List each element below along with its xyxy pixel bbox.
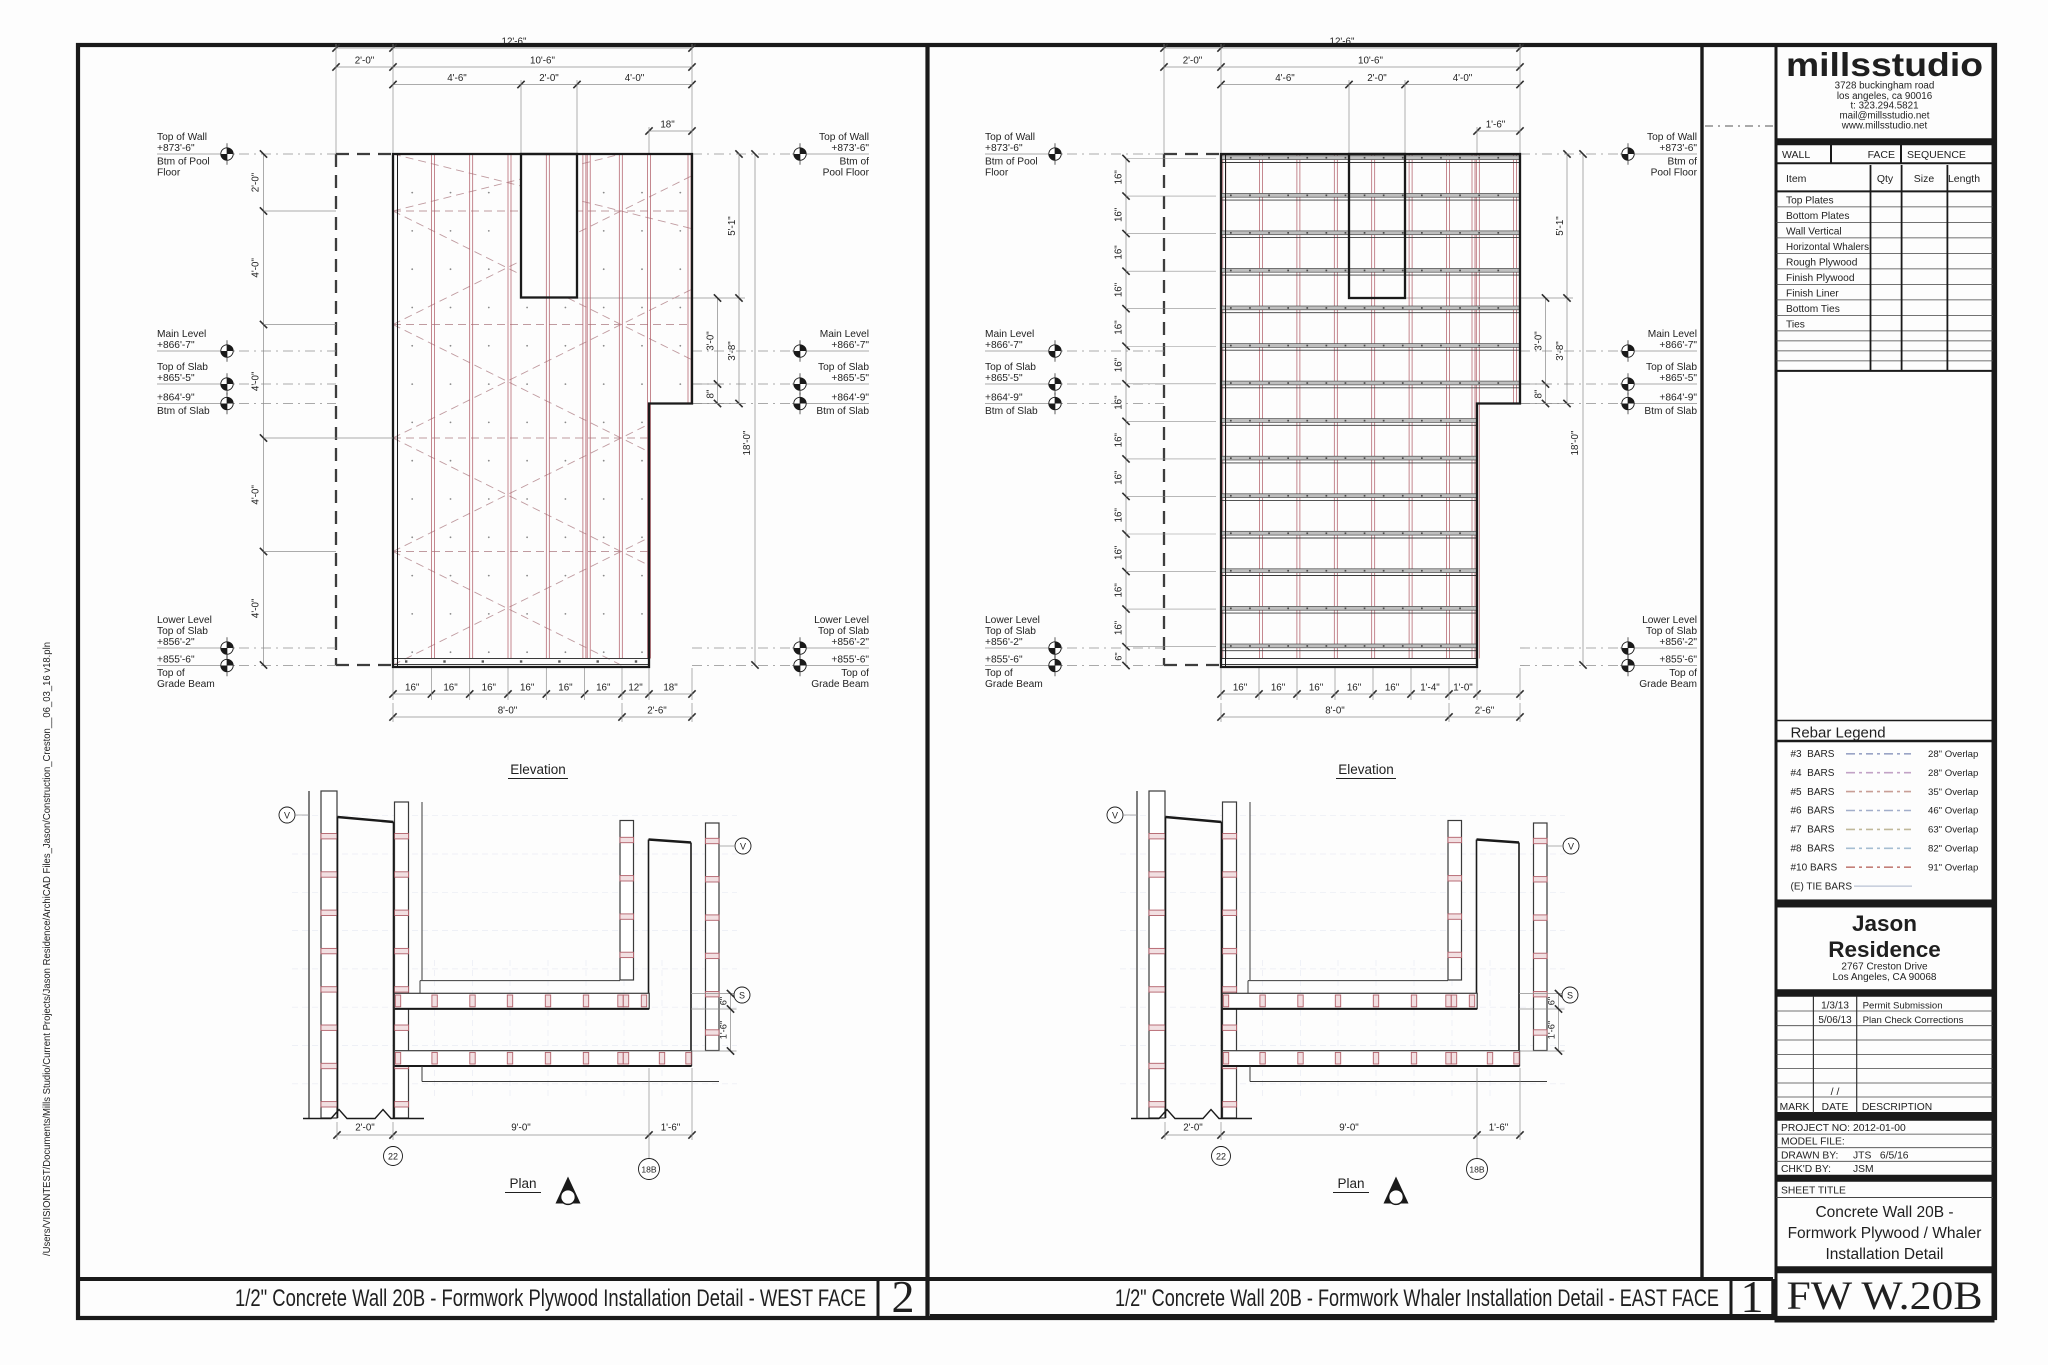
svg-text:16": 16" [1309, 683, 1324, 694]
svg-text:Lower Level: Lower Level [1642, 615, 1697, 626]
svg-text:Floor: Floor [985, 168, 1009, 179]
svg-text:Permit Submission: Permit Submission [1863, 1000, 1943, 1011]
svg-text:Top of Slab: Top of Slab [818, 362, 869, 373]
svg-text:#4 BARS: #4 BARS [1791, 768, 1835, 779]
svg-text:Plan: Plan [1337, 1176, 1364, 1191]
svg-text:10'-6": 10'-6" [530, 56, 555, 67]
svg-text:Item: Item [1786, 173, 1807, 185]
svg-text:Lower Level: Lower Level [985, 615, 1040, 626]
svg-text:Ties: Ties [1786, 320, 1805, 331]
svg-text:63" Overlap: 63" Overlap [1928, 825, 1978, 836]
svg-text:/ /: / / [1831, 1086, 1840, 1098]
svg-text:+855'-6": +855'-6" [985, 655, 1023, 666]
svg-text:+865'-5": +865'-5" [157, 373, 195, 384]
svg-text:16": 16" [1114, 620, 1125, 635]
svg-text:Btm of Slab: Btm of Slab [985, 406, 1038, 417]
svg-text:+855'-6": +855'-6" [831, 655, 869, 666]
svg-text:16": 16" [1114, 207, 1125, 222]
svg-text:JTS 6/5/16: JTS 6/5/16 [1853, 1150, 1909, 1161]
svg-text:18B: 18B [641, 1165, 657, 1175]
svg-text:4'-0": 4'-0" [251, 598, 262, 618]
svg-text:Floor: Floor [157, 168, 181, 179]
svg-text:Lower Level: Lower Level [814, 615, 869, 626]
svg-text:16": 16" [405, 683, 420, 694]
svg-text:Finish Liner: Finish Liner [1786, 289, 1839, 300]
svg-text:18B: 18B [1469, 1165, 1485, 1175]
svg-text:18'-0": 18'-0" [742, 430, 753, 455]
svg-text:+864'-9": +864'-9" [985, 393, 1023, 404]
svg-text:2'-0": 2'-0" [355, 56, 375, 67]
svg-text:+855'-6": +855'-6" [157, 655, 195, 666]
svg-text:FW W.20B: FW W.20B [1787, 1273, 1983, 1318]
svg-text:Size: Size [1914, 173, 1935, 185]
svg-text:4'-6": 4'-6" [1275, 73, 1295, 84]
svg-text:Top of Wall: Top of Wall [985, 132, 1035, 143]
svg-text:22: 22 [388, 1152, 398, 1162]
svg-text:1'-4": 1'-4" [1420, 683, 1440, 694]
svg-text:+866'-7": +866'-7" [1659, 340, 1697, 351]
svg-text:Btm of: Btm of [840, 157, 870, 168]
svg-text:Wall Vertical: Wall Vertical [1786, 227, 1842, 238]
svg-text:Los Angeles, CA 90068: Los Angeles, CA 90068 [1833, 972, 1937, 983]
svg-text:4'-6": 4'-6" [447, 73, 467, 84]
svg-text:Finish Plywood: Finish Plywood [1786, 273, 1855, 284]
svg-text:16": 16" [1233, 683, 1248, 694]
svg-text:9'-0": 9'-0" [511, 1123, 531, 1134]
svg-text:Grade Beam: Grade Beam [985, 679, 1043, 690]
svg-text:16": 16" [482, 683, 497, 694]
svg-text:+865'-5": +865'-5" [831, 373, 869, 384]
svg-text:Top of Slab: Top of Slab [157, 626, 208, 637]
svg-text:16": 16" [1347, 683, 1362, 694]
svg-text:1'-6": 1'-6" [1486, 120, 1506, 131]
svg-text:Btm of: Btm of [1668, 157, 1698, 168]
svg-text:8'-0": 8'-0" [498, 706, 518, 717]
svg-text:Btm of Slab: Btm of Slab [1644, 406, 1697, 417]
svg-text:82" Overlap: 82" Overlap [1928, 844, 1978, 855]
svg-text:16": 16" [1271, 683, 1286, 694]
svg-text:28" Overlap: 28" Overlap [1928, 749, 1978, 760]
svg-text:Main Level: Main Level [157, 329, 206, 340]
svg-text:+856'-2": +856'-2" [157, 637, 195, 648]
svg-text:Btm of Pool: Btm of Pool [985, 157, 1038, 168]
svg-text:16": 16" [1114, 395, 1125, 410]
svg-text:V: V [740, 842, 746, 852]
svg-text:16": 16" [1114, 170, 1125, 185]
svg-text:+864'-9": +864'-9" [157, 393, 195, 404]
svg-text:Length: Length [1948, 173, 1980, 185]
svg-text:16": 16" [1114, 545, 1125, 560]
svg-text:2'-0": 2'-0" [355, 1123, 375, 1134]
svg-text:6": 6" [719, 997, 729, 1005]
svg-text:2'-0": 2'-0" [251, 172, 262, 192]
svg-text:1'-6": 1'-6" [1547, 1021, 1557, 1040]
svg-text:1/2" Concrete Wall 20B - Formw: 1/2" Concrete Wall 20B - Formwork Whaler… [1115, 1285, 1719, 1312]
svg-text:Grade Beam: Grade Beam [157, 679, 215, 690]
svg-text:8": 8" [1534, 389, 1545, 398]
svg-text:16": 16" [1114, 432, 1125, 447]
svg-text:3'-0": 3'-0" [706, 331, 717, 351]
svg-text:Top of: Top of [1669, 668, 1697, 679]
svg-text:+865'-5": +865'-5" [985, 373, 1023, 384]
svg-text:Main Level: Main Level [1648, 329, 1697, 340]
svg-text:Formwork Plywood / Whaler: Formwork Plywood / Whaler [1788, 1225, 1982, 1242]
svg-text:2'-6": 2'-6" [647, 706, 667, 717]
svg-text:+856'-2": +856'-2" [831, 637, 869, 648]
svg-text:FACE: FACE [1868, 149, 1895, 161]
svg-text:Pool Floor: Pool Floor [823, 168, 870, 179]
svg-text:18": 18" [663, 683, 678, 694]
svg-text:Grade Beam: Grade Beam [1639, 679, 1697, 690]
svg-text:+866'-7": +866'-7" [831, 340, 869, 351]
svg-text:Top of Slab: Top of Slab [157, 362, 208, 373]
svg-text:Qty: Qty [1877, 173, 1894, 185]
svg-text:V: V [1112, 811, 1118, 821]
svg-text:+873'-6": +873'-6" [1659, 143, 1697, 154]
svg-text:1: 1 [1741, 1271, 1764, 1322]
svg-text:Rebar Legend: Rebar Legend [1791, 725, 1886, 742]
svg-text:Top of Slab: Top of Slab [985, 626, 1036, 637]
svg-text:2'-0": 2'-0" [1183, 1123, 1203, 1134]
svg-text:2'-0": 2'-0" [1183, 56, 1203, 67]
svg-text:#8 BARS: #8 BARS [1791, 844, 1835, 855]
svg-text:16": 16" [443, 683, 458, 694]
svg-text:MODEL FILE:: MODEL FILE: [1781, 1137, 1845, 1148]
svg-text:16": 16" [1385, 683, 1400, 694]
svg-text:DRAWN BY:: DRAWN BY: [1781, 1150, 1838, 1161]
svg-text:2'-6": 2'-6" [1475, 706, 1495, 717]
svg-text:12": 12" [628, 683, 643, 694]
svg-text:8": 8" [706, 389, 717, 398]
svg-text:6": 6" [1547, 997, 1557, 1005]
svg-text:+873'-6": +873'-6" [157, 143, 195, 154]
svg-text:9'-0": 9'-0" [1339, 1123, 1359, 1134]
svg-text:16": 16" [1114, 357, 1125, 372]
svg-text:#7 BARS: #7 BARS [1791, 825, 1835, 836]
svg-text:Top of Slab: Top of Slab [1646, 362, 1697, 373]
svg-text:+856'-2": +856'-2" [985, 637, 1023, 648]
svg-text:1/3/13: 1/3/13 [1821, 1000, 1849, 1011]
svg-text:16": 16" [1114, 320, 1125, 335]
svg-text:Top of Slab: Top of Slab [1646, 626, 1697, 637]
svg-text:2767 Creston Drive: 2767 Creston Drive [1841, 962, 1928, 973]
svg-text:Top of Slab: Top of Slab [818, 626, 869, 637]
svg-text:Top of Wall: Top of Wall [1647, 132, 1697, 143]
svg-text:V: V [1568, 842, 1574, 852]
svg-text:Bottom Ties: Bottom Ties [1786, 304, 1840, 315]
svg-text:Top of: Top of [157, 668, 185, 679]
svg-text:5'-1": 5'-1" [1555, 216, 1566, 236]
svg-text:+866'-7": +866'-7" [157, 340, 195, 351]
svg-text:#10 BARS: #10 BARS [1791, 862, 1838, 873]
svg-text:+873'-6": +873'-6" [985, 143, 1023, 154]
svg-text:5'-1": 5'-1" [727, 216, 738, 236]
svg-text:1'-6": 1'-6" [1489, 1123, 1509, 1134]
svg-text:Elevation: Elevation [510, 762, 566, 777]
svg-text:Jason: Jason [1852, 911, 1917, 936]
svg-text:2'-0": 2'-0" [1367, 73, 1387, 84]
svg-text:35" Overlap: 35" Overlap [1928, 787, 1978, 798]
svg-text:2012-01-00: 2012-01-00 [1853, 1123, 1906, 1134]
svg-text:4'-0": 4'-0" [1453, 73, 1473, 84]
svg-text:#5 BARS: #5 BARS [1791, 787, 1835, 798]
svg-text:8'-0": 8'-0" [1325, 706, 1345, 717]
svg-text:Btm of Slab: Btm of Slab [816, 406, 869, 417]
svg-text:+864'-9": +864'-9" [831, 393, 869, 404]
svg-text:2'-0": 2'-0" [539, 73, 559, 84]
svg-text:Top of: Top of [841, 668, 869, 679]
svg-text:+873'-6": +873'-6" [831, 143, 869, 154]
svg-text:Top of Wall: Top of Wall [157, 132, 207, 143]
svg-text:12'-6": 12'-6" [502, 37, 527, 48]
svg-text:4'-0": 4'-0" [251, 371, 262, 391]
svg-text:+855'-6": +855'-6" [1659, 655, 1697, 666]
svg-text:18": 18" [660, 120, 675, 131]
svg-text:4'-0": 4'-0" [625, 73, 645, 84]
svg-text:1/2" Concrete Wall 20B - Formw: 1/2" Concrete Wall 20B - Formwork Plywoo… [235, 1285, 866, 1312]
svg-text:V: V [284, 811, 290, 821]
svg-text:www.millsstudio.net: www.millsstudio.net [1841, 121, 1928, 132]
svg-text:Main Level: Main Level [820, 329, 869, 340]
svg-text:1'-6": 1'-6" [661, 1123, 681, 1134]
svg-text:16": 16" [1114, 470, 1125, 485]
svg-text:millsstudio: millsstudio [1786, 46, 1983, 83]
svg-text:Plan: Plan [509, 1176, 536, 1191]
svg-text:28" Overlap: 28" Overlap [1928, 768, 1978, 779]
svg-text:Lower Level: Lower Level [157, 615, 212, 626]
svg-text:4'-0": 4'-0" [251, 485, 262, 505]
svg-text:JSM: JSM [1853, 1164, 1874, 1175]
svg-text:Top of: Top of [985, 668, 1013, 679]
svg-text:16": 16" [596, 683, 611, 694]
svg-text:SEQUENCE: SEQUENCE [1907, 149, 1966, 161]
svg-text:10'-6": 10'-6" [1358, 56, 1383, 67]
svg-text:Bottom Plates: Bottom Plates [1786, 211, 1849, 222]
svg-text:#3 BARS: #3 BARS [1791, 749, 1835, 760]
svg-text:Btm of Pool: Btm of Pool [157, 157, 210, 168]
svg-text:Top of Slab: Top of Slab [985, 362, 1036, 373]
svg-text:46" Overlap: 46" Overlap [1928, 806, 1978, 817]
svg-text:Elevation: Elevation [1338, 762, 1394, 777]
svg-text:S: S [1567, 991, 1573, 1001]
svg-text:16": 16" [520, 683, 535, 694]
svg-text:Btm of Slab: Btm of Slab [157, 406, 210, 417]
svg-text:16": 16" [558, 683, 573, 694]
svg-text:SHEET TITLE: SHEET TITLE [1781, 1186, 1846, 1197]
svg-text:3'-0": 3'-0" [1534, 331, 1545, 351]
svg-text:5/06/13: 5/06/13 [1818, 1015, 1852, 1026]
svg-text:Plan Check Corrections: Plan Check Corrections [1863, 1015, 1964, 1026]
svg-text:Top of Wall: Top of Wall [819, 132, 869, 143]
svg-text:18'-0": 18'-0" [1570, 430, 1581, 455]
svg-text:S: S [739, 991, 745, 1001]
svg-text:+865'-5": +865'-5" [1659, 373, 1697, 384]
svg-text:1'-0": 1'-0" [1453, 683, 1473, 694]
svg-text:DESCRIPTION: DESCRIPTION [1862, 1102, 1932, 1113]
svg-text:Concrete Wall 20B -: Concrete Wall 20B - [1815, 1204, 1953, 1221]
svg-text:WALL: WALL [1782, 149, 1810, 161]
svg-text:Residence: Residence [1828, 937, 1941, 962]
svg-text:12'-6": 12'-6" [1330, 37, 1355, 48]
svg-text:MARK: MARK [1780, 1102, 1810, 1113]
svg-text:16": 16" [1114, 282, 1125, 297]
svg-text:91" Overlap: 91" Overlap [1928, 862, 1978, 873]
svg-text:22: 22 [1216, 1152, 1226, 1162]
svg-text:Pool Floor: Pool Floor [1651, 168, 1698, 179]
svg-text:+866'-7": +866'-7" [985, 340, 1023, 351]
svg-text:+864'-9": +864'-9" [1659, 393, 1697, 404]
svg-text:16": 16" [1114, 508, 1125, 523]
svg-text:(E) TIE BARS: (E) TIE BARS [1791, 881, 1853, 892]
svg-text:DATE: DATE [1822, 1102, 1849, 1113]
svg-text:Rough Plywood: Rough Plywood [1786, 258, 1858, 269]
svg-text:16": 16" [1114, 583, 1125, 598]
svg-text:#6 BARS: #6 BARS [1791, 806, 1835, 817]
svg-text:4'-0": 4'-0" [251, 258, 262, 278]
svg-text:Installation Detail: Installation Detail [1825, 1246, 1943, 1263]
svg-text:PROJECT NO:: PROJECT NO: [1781, 1123, 1850, 1134]
svg-text:1'-6": 1'-6" [719, 1021, 729, 1040]
svg-text:Horizontal Whalers: Horizontal Whalers [1786, 242, 1869, 253]
svg-text:CHK'D BY:: CHK'D BY: [1781, 1164, 1831, 1175]
svg-text:16": 16" [1114, 245, 1125, 260]
svg-text:+856'-2": +856'-2" [1659, 637, 1697, 648]
svg-text:/Users/VISIONTEST/Documents/Mi: /Users/VISIONTEST/Documents/Mills Studio… [42, 642, 53, 1256]
svg-text:Top Plates: Top Plates [1786, 196, 1834, 207]
svg-text:6": 6" [1114, 652, 1124, 660]
svg-text:2: 2 [892, 1271, 915, 1322]
svg-text:Main Level: Main Level [985, 329, 1034, 340]
svg-text:3728 buckingham road: 3728 buckingham road [1835, 81, 1935, 92]
svg-text:Grade Beam: Grade Beam [811, 679, 869, 690]
